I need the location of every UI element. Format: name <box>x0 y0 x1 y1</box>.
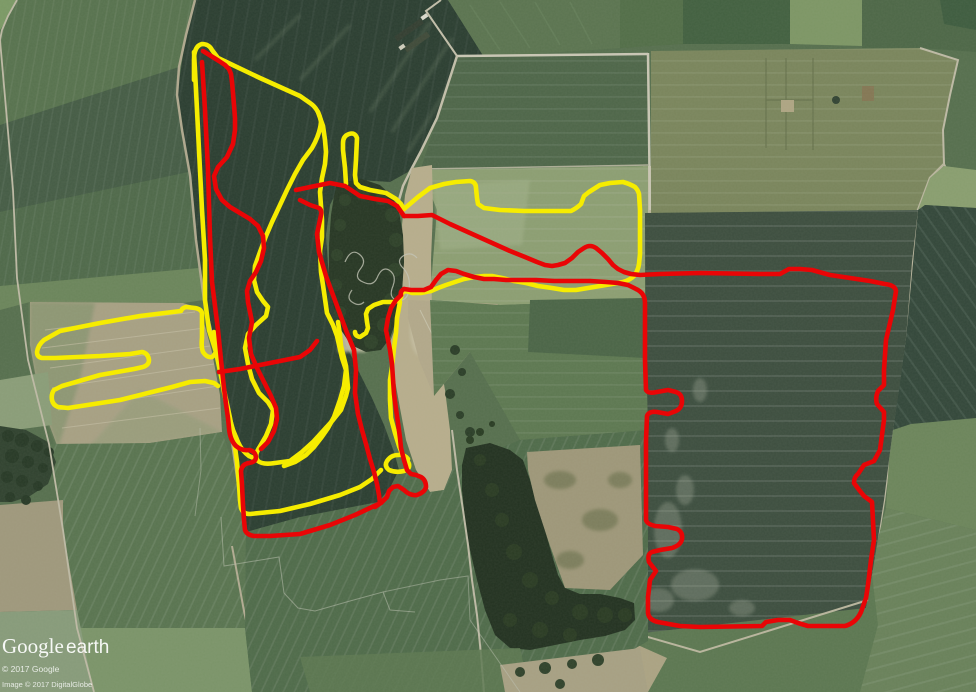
svg-text:Image © 2017 DigitalGlobe: Image © 2017 DigitalGlobe <box>2 680 92 689</box>
svg-text:© 2017 Google: © 2017 Google <box>2 664 60 674</box>
svg-text:Google: Google <box>2 634 64 658</box>
svg-text:earth: earth <box>66 637 109 658</box>
